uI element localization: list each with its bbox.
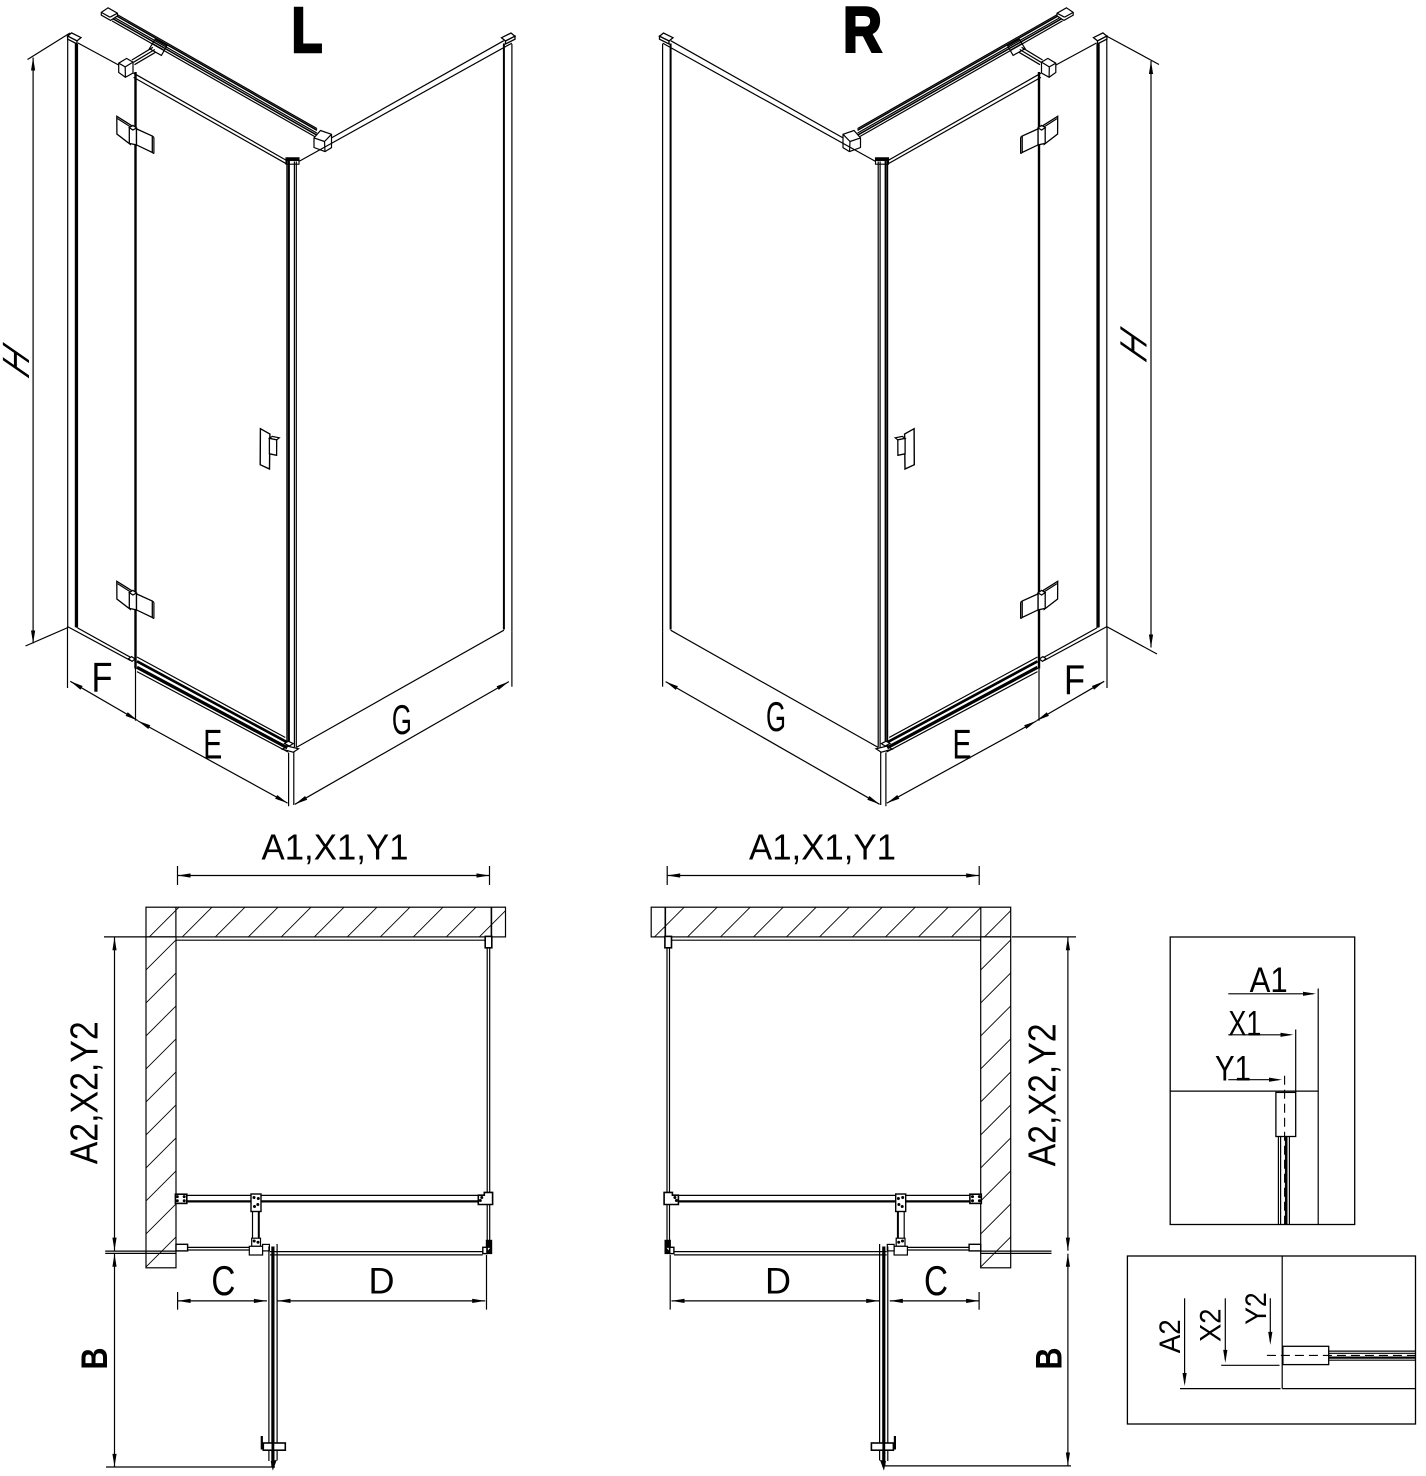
svg-text:A2: A2 bbox=[1154, 1319, 1187, 1353]
svg-text:Y2: Y2 bbox=[1240, 1292, 1273, 1325]
svg-text:D: D bbox=[765, 1261, 791, 1302]
svg-text:X2: X2 bbox=[1194, 1309, 1227, 1343]
svg-text:Y1: Y1 bbox=[1215, 1050, 1251, 1089]
svg-text:B: B bbox=[1029, 1348, 1070, 1370]
svg-text:A1,X1,Y1: A1,X1,Y1 bbox=[262, 827, 409, 868]
svg-text:C: C bbox=[924, 1257, 948, 1304]
svg-text:G: G bbox=[392, 696, 412, 743]
svg-text:X1: X1 bbox=[1228, 1005, 1261, 1044]
svg-text:A2,X2,Y2: A2,X2,Y2 bbox=[1021, 1023, 1064, 1166]
svg-text:D: D bbox=[369, 1261, 395, 1302]
svg-text:A2,X2,Y2: A2,X2,Y2 bbox=[64, 1021, 107, 1164]
svg-text:G: G bbox=[766, 693, 786, 740]
svg-text:E: E bbox=[953, 720, 972, 767]
svg-text:E: E bbox=[203, 720, 222, 767]
svg-text:F: F bbox=[92, 654, 113, 701]
svg-text:A1,X1,Y1: A1,X1,Y1 bbox=[749, 827, 896, 868]
svg-text:R: R bbox=[843, 0, 882, 66]
svg-text:F: F bbox=[1064, 656, 1085, 703]
svg-text:B: B bbox=[74, 1348, 115, 1370]
svg-text:C: C bbox=[211, 1257, 235, 1304]
svg-text:A1: A1 bbox=[1250, 961, 1288, 1000]
svg-text:L: L bbox=[292, 0, 323, 66]
